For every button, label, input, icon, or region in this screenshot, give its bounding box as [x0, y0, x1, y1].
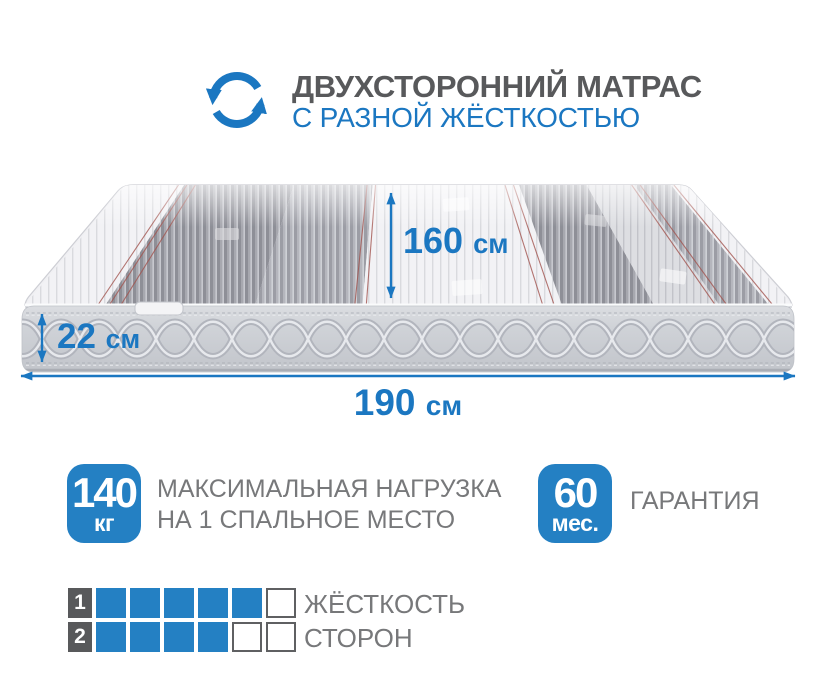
- rotate-arrows-icon: [195, 57, 279, 141]
- page-title: ДВУХСТОРОННИЙ МАТРАС: [292, 69, 702, 105]
- max-load-label-line1: МАКСИМАЛЬНАЯ НАГРУЗКА: [157, 474, 501, 505]
- page-root: ДВУХСТОРОННИЙ МАТРАС С РАЗНОЙ ЖЁСТКОСТЬЮ: [0, 0, 816, 700]
- scale-row-side2: 2: [68, 622, 296, 652]
- max-load-label: МАКСИМАЛЬНАЯ НАГРУЗКА НА 1 СПАЛЬНОЕ МЕСТ…: [157, 474, 501, 536]
- dim-depth-unit: см: [473, 228, 508, 259]
- scale-square-filled: [96, 588, 126, 618]
- warranty-label: ГАРАНТИЯ: [630, 486, 760, 517]
- scale-squares: [96, 622, 296, 652]
- scale-label-sides: СТОРОН: [304, 623, 413, 653]
- scale-square-filled: [130, 588, 160, 618]
- scale-square-filled: [232, 588, 262, 618]
- scale-squares: [96, 588, 296, 618]
- dim-label-depth: 160 см: [403, 223, 509, 259]
- scale-square-filled: [198, 622, 228, 652]
- dim-length-value: 190: [354, 382, 416, 423]
- scale-square-filled: [164, 588, 194, 618]
- dim-length-unit: см: [426, 390, 462, 421]
- scale-row-number: 2: [68, 622, 92, 652]
- scale-label-hardness: ЖЁСТКОСТЬ: [304, 589, 465, 619]
- warranty-unit: мес.: [552, 512, 599, 534]
- warranty-badge: 60 мес.: [538, 464, 612, 543]
- scale-row-side1: 1: [68, 588, 296, 618]
- dim-label-length: 190 см: [0, 384, 816, 421]
- scale-square-filled: [164, 622, 194, 652]
- scale-square-empty: [232, 622, 262, 652]
- warranty-value: 60: [554, 474, 597, 512]
- scale-square-filled: [198, 588, 228, 618]
- max-load-unit: кг: [94, 512, 114, 534]
- scale-square-filled: [96, 622, 126, 652]
- dim-depth-value: 160: [403, 220, 463, 261]
- mattress-tag: [135, 302, 183, 315]
- max-load-label-line2: НА 1 СПАЛЬНОЕ МЕСТО: [157, 505, 501, 536]
- scale-square-filled: [130, 622, 160, 652]
- scale-square-empty: [266, 622, 296, 652]
- max-load-value: 140: [72, 474, 136, 512]
- dim-height-value: 22: [57, 317, 96, 356]
- dim-label-height: 22 см: [57, 319, 140, 354]
- max-load-badge: 140 кг: [67, 464, 141, 543]
- scale-square-empty: [266, 588, 296, 618]
- page-subtitle: С РАЗНОЙ ЖЁСТКОСТЬЮ: [292, 102, 640, 134]
- scale-row-number: 1: [68, 588, 92, 618]
- dim-height-unit: см: [106, 324, 140, 354]
